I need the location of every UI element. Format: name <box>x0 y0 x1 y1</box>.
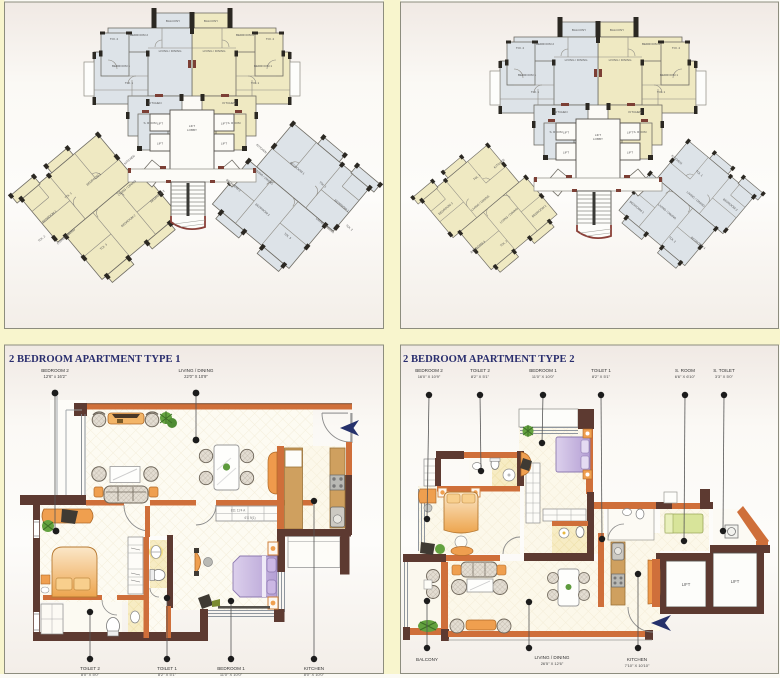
svg-text:LOBBY: LOBBY <box>187 128 197 132</box>
svg-text:2 BEDROOM APARTMENT TYPE 2: 2 BEDROOM APARTMENT TYPE 2 <box>403 354 575 365</box>
svg-text:LOBBY: LOBBY <box>593 137 603 141</box>
svg-text:8'0" X 5'0": 8'0" X 5'0" <box>81 672 100 677</box>
svg-text:BALCONY: BALCONY <box>572 28 586 32</box>
svg-text:TOILET 1: TOILET 1 <box>157 666 177 671</box>
svg-text:KITCHEN: KITCHEN <box>627 657 647 662</box>
svg-text:TOI. 1: TOI. 1 <box>251 81 260 85</box>
svg-text:LIFT: LIFT <box>221 122 227 126</box>
svg-text:TOI. 2: TOI. 2 <box>110 37 119 41</box>
svg-text:BEDROOM 2: BEDROOM 2 <box>642 42 660 46</box>
svg-text:TOI. 1: TOI. 1 <box>531 90 540 94</box>
svg-text:7'10" X 10'10": 7'10" X 10'10" <box>625 663 650 668</box>
svg-text:LIFT: LIFT <box>157 142 163 146</box>
svg-text:BEDROOM 2: BEDROOM 2 <box>41 368 69 373</box>
svg-text:8'0" X 10'0": 8'0" X 10'0" <box>304 672 325 677</box>
svg-text:26'5" X 12'6": 26'5" X 12'6" <box>541 661 564 666</box>
svg-text:KITCHEN: KITCHEN <box>554 110 567 114</box>
svg-text:BEDROOM 1: BEDROOM 1 <box>217 666 245 671</box>
svg-text:LIFT: LIFT <box>157 122 163 126</box>
svg-text:LIVING / DINING: LIVING / DINING <box>203 49 227 53</box>
svg-text:S. ROOM: S. ROOM <box>227 121 241 125</box>
svg-text:KITCHEN: KITCHEN <box>222 101 235 105</box>
svg-text:LIVING / DINING: LIVING / DINING <box>609 58 633 62</box>
svg-text:LIFT: LIFT <box>627 131 633 135</box>
svg-text:LIFT: LIFT <box>731 579 740 584</box>
svg-text:BALCONY: BALCONY <box>610 28 624 32</box>
svg-text:BEDROOM 1: BEDROOM 1 <box>518 73 536 77</box>
svg-text:2 BEDROOM APARTMENT TYPE 1: 2 BEDROOM APARTMENT TYPE 1 <box>9 354 181 365</box>
svg-text:811 11'4 A: 811 11'4 A <box>231 509 246 513</box>
svg-text:TOI. 2: TOI. 2 <box>672 46 681 50</box>
svg-text:TOI. 1: TOI. 1 <box>125 81 134 85</box>
svg-text:S. ROOM: S. ROOM <box>633 130 647 134</box>
svg-text:TOILET 2: TOILET 2 <box>80 666 100 671</box>
svg-text:LIVING / DINING: LIVING / DINING <box>179 368 214 373</box>
svg-text:LIVING / DINING: LIVING / DINING <box>535 655 570 660</box>
svg-text:22'0" X 10'9": 22'0" X 10'9" <box>184 374 208 379</box>
svg-text:6'6" X 6'10": 6'6" X 6'10" <box>675 374 696 379</box>
svg-text:11'0" X 10'0": 11'0" X 10'0" <box>532 374 555 379</box>
svg-text:S. ROOM: S. ROOM <box>675 368 695 373</box>
svg-text:3'3" X 5'0": 3'3" X 5'0" <box>715 374 734 379</box>
svg-text:12'6" x 16'2": 12'6" x 16'2" <box>44 374 67 379</box>
svg-text:11'0" X 10'0": 11'0" X 10'0" <box>220 672 243 677</box>
svg-text:LIVING / DINING: LIVING / DINING <box>159 49 183 53</box>
svg-text:LIFT: LIFT <box>563 131 569 135</box>
svg-text:LIFT: LIFT <box>682 582 691 587</box>
svg-text:16'0" X 10'9": 16'0" X 10'9" <box>418 374 441 379</box>
svg-text:8'2" X 5'1": 8'2" X 5'1" <box>471 374 490 379</box>
svg-text:BEDROOM 2: BEDROOM 2 <box>236 33 254 37</box>
svg-text:S. ROOM: S. ROOM <box>549 130 563 134</box>
svg-text:LIFT: LIFT <box>221 142 227 146</box>
svg-text:KITCHEN: KITCHEN <box>148 101 161 105</box>
svg-text:TOILET 2: TOILET 2 <box>470 368 490 373</box>
svg-text:TOI. 2: TOI. 2 <box>516 46 525 50</box>
svg-text:LIFT: LIFT <box>563 151 569 155</box>
svg-text:TOI. 1: TOI. 1 <box>657 90 666 94</box>
svg-text:BEDROOM 1: BEDROOM 1 <box>529 368 557 373</box>
svg-text:BALCONY: BALCONY <box>416 657 438 662</box>
svg-text:S. TOILET: S. TOILET <box>713 368 735 373</box>
svg-text:KITCHEN: KITCHEN <box>304 666 324 671</box>
svg-text:S. ROOM: S. ROOM <box>143 121 157 125</box>
svg-text:BEDROOM 1: BEDROOM 1 <box>254 64 272 68</box>
svg-text:KITCHEN: KITCHEN <box>628 110 641 114</box>
svg-text:8'2" X 5'1": 8'2" X 5'1" <box>158 672 177 677</box>
svg-text:6'X 9(1): 6'X 9(1) <box>244 516 255 520</box>
svg-text:LIVING / DINING: LIVING / DINING <box>565 58 589 62</box>
svg-text:BEDROOM 2: BEDROOM 2 <box>130 33 148 37</box>
svg-text:BEDROOM 2: BEDROOM 2 <box>536 42 554 46</box>
svg-text:BEDROOM 1: BEDROOM 1 <box>112 64 130 68</box>
svg-text:BEDROOM 1: BEDROOM 1 <box>660 73 678 77</box>
svg-text:BEDROOM 2: BEDROOM 2 <box>415 368 443 373</box>
svg-text:TOI. 2: TOI. 2 <box>266 37 275 41</box>
svg-text:8'2" X 5'1": 8'2" X 5'1" <box>592 374 611 379</box>
svg-text:BALCONY: BALCONY <box>204 19 218 23</box>
svg-text:BALCONY: BALCONY <box>166 19 180 23</box>
svg-text:LIFT: LIFT <box>627 151 633 155</box>
svg-text:TOILET 1: TOILET 1 <box>591 368 611 373</box>
